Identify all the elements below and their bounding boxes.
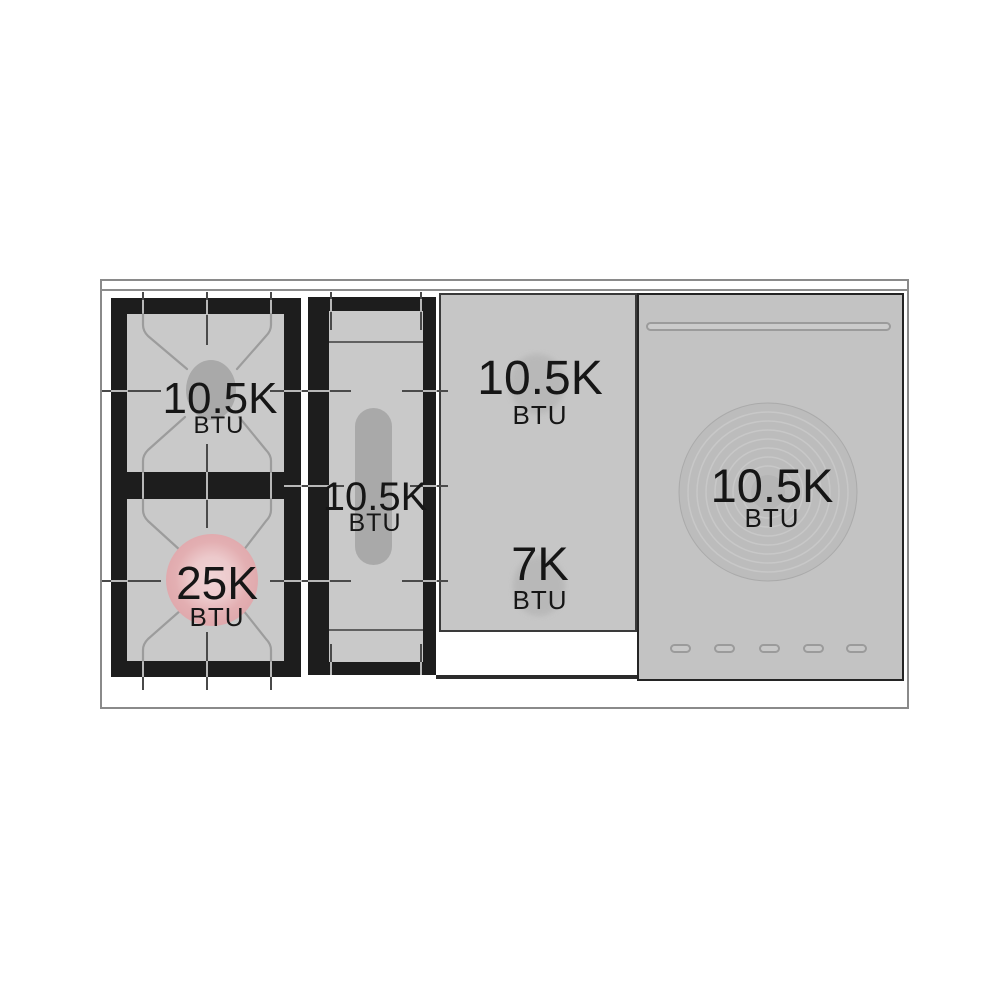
btu-unit-bottom-left-burner: BTU — [117, 604, 317, 630]
btu-value-middle-bottom-burner: 7K — [440, 540, 640, 587]
vent-slot — [670, 644, 691, 653]
btu-unit-middle-bottom-burner: BTU — [440, 587, 640, 613]
btu-value-middle-top-burner: 10.5K — [440, 355, 640, 403]
vent-slot — [846, 644, 867, 653]
middle-section-front-strip — [439, 632, 637, 675]
vent-slot — [714, 644, 735, 653]
griddle-edge-line-bottom — [329, 629, 423, 631]
vent-slot — [803, 644, 824, 653]
vent-slot — [759, 644, 780, 653]
french-top-handle-bar — [646, 322, 891, 331]
btu-value-french-top-burner: 10.5K — [672, 462, 872, 509]
btu-unit-french-top-burner: BTU — [672, 505, 872, 531]
btu-unit-middle-top-burner: BTU — [440, 402, 640, 428]
griddle-edge-line-top — [329, 341, 423, 343]
btu-unit-top-left-burner: BTU — [119, 414, 319, 438]
btu-value-bottom-left-burner: 25K — [117, 560, 317, 606]
cooktop-diagram: 10.5K BTU 25K BTU 10.5K BTU 10.5K BTU 7K… — [0, 0, 1000, 1000]
back-trim-line — [100, 289, 909, 291]
btu-unit-griddle-burner: BTU — [275, 511, 475, 536]
